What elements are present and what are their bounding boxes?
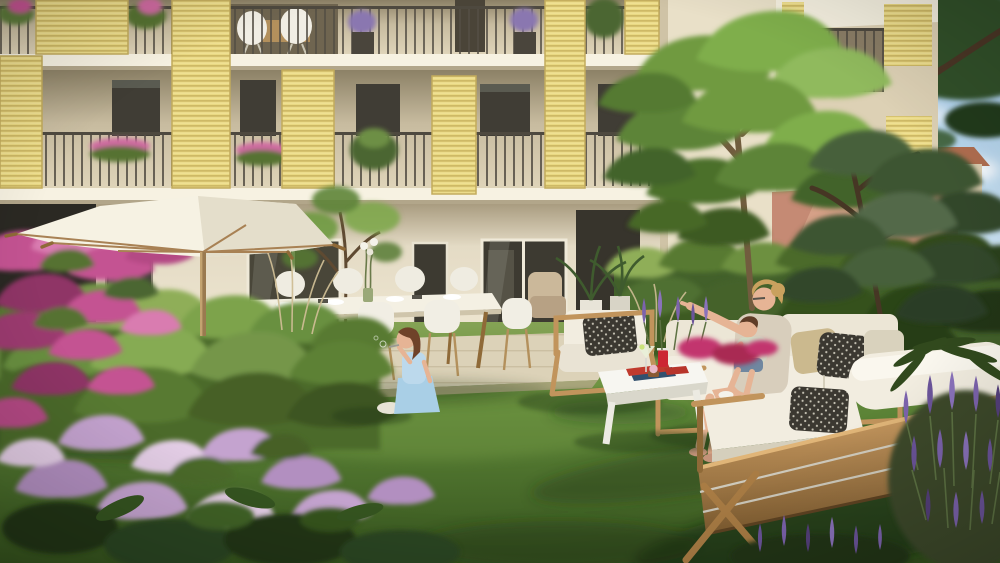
- scene-canvas: [0, 0, 1000, 563]
- vignette: [0, 0, 1000, 563]
- courtyard-render: [0, 0, 1000, 563]
